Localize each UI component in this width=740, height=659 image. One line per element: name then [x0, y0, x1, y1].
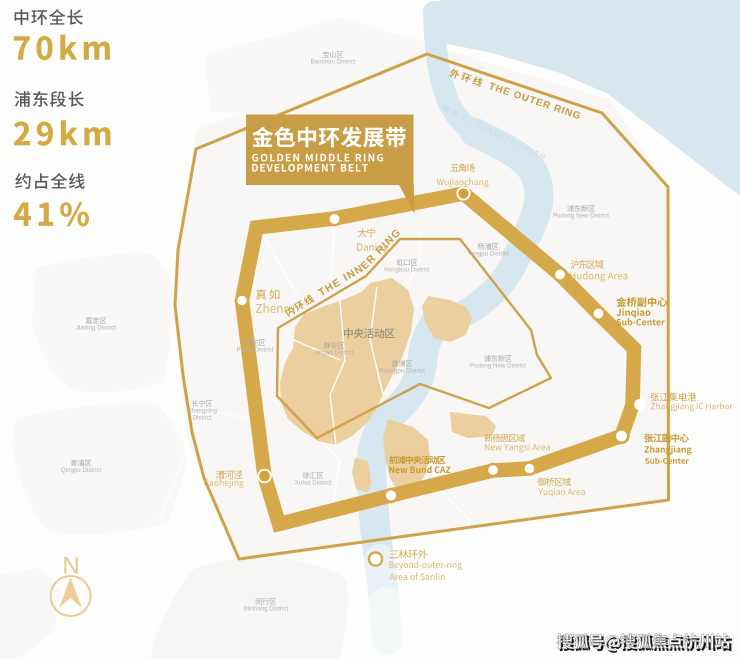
svg-text:Putuo District: Putuo District [237, 347, 274, 354]
svg-text:Changning: Changning [187, 408, 217, 415]
svg-text:Xuhui District: Xuhui District [295, 480, 332, 487]
svg-text:Hongkou District: Hongkou District [384, 267, 430, 274]
svg-text:Pudong New District: Pudong New District [470, 363, 526, 370]
svg-text:Baoshan District: Baoshan District [310, 59, 355, 66]
svg-text:Jingan District: Jingan District [315, 350, 354, 357]
svg-text:District: District [193, 415, 212, 422]
svg-text:Pudong New District: Pudong New District [553, 213, 609, 220]
svg-text:Minhang District: Minhang District [244, 606, 289, 613]
svg-text:Jiading District: Jiading District [76, 325, 117, 332]
svg-text:Qingpu District: Qingpu District [61, 467, 102, 474]
svg-text:Huangpu District: Huangpu District [379, 368, 425, 375]
svg-text:Yangpu District: Yangpu District [467, 251, 509, 258]
